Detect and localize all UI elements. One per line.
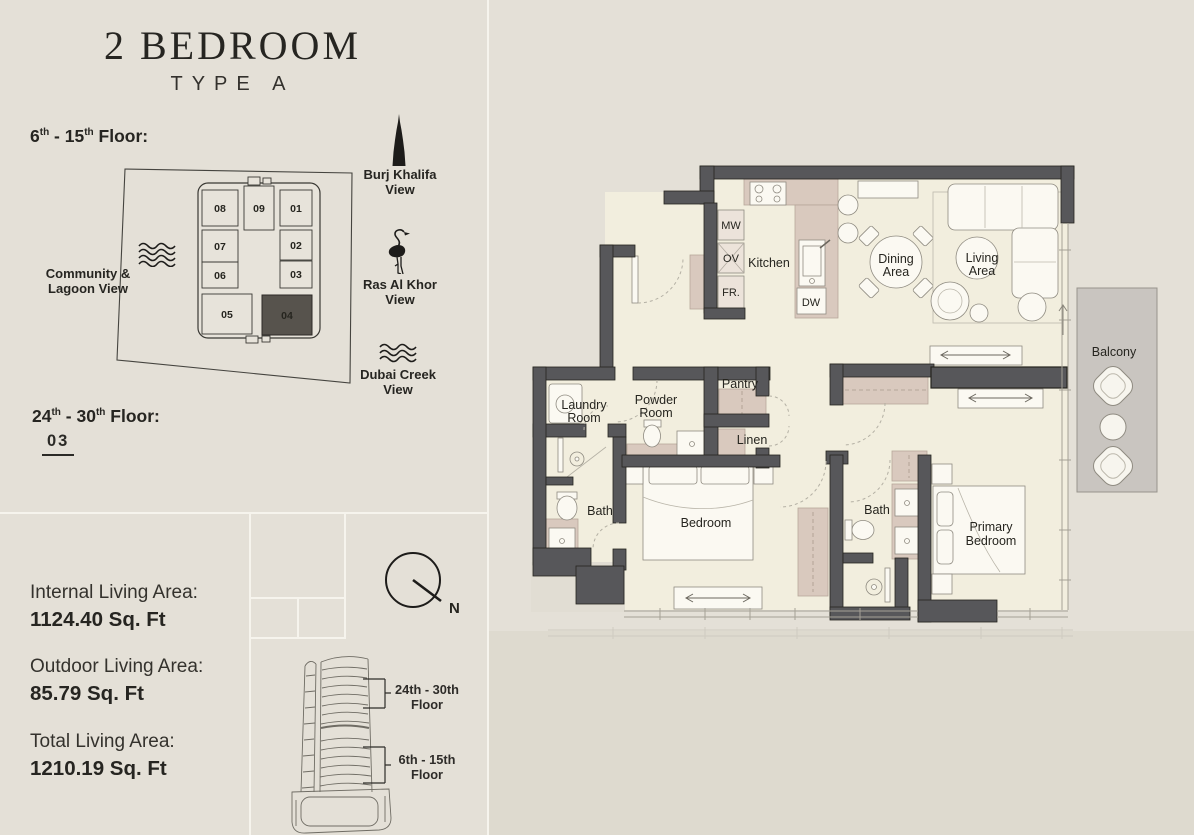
- unit-02: 02: [290, 240, 302, 252]
- unit-type-title: 2 BEDROOM: [85, 22, 380, 69]
- floor-range-high-label: 24th - 30th Floor:: [32, 406, 160, 427]
- unit-number-badge: 03: [42, 432, 74, 456]
- side-table: [970, 304, 988, 322]
- unit-01: 01: [290, 203, 302, 215]
- divider-vertical-b: [344, 512, 346, 638]
- view-dubai-creek: Dubai Creek View: [338, 367, 458, 397]
- label-kitchen: Kitchen: [748, 256, 790, 270]
- shower-glass: [885, 568, 890, 602]
- pillow: [937, 492, 953, 526]
- unit-08: 08: [214, 203, 226, 215]
- toilet: [852, 521, 874, 540]
- powder-sink: [677, 431, 708, 457]
- label-bath-2: Bath: [864, 503, 890, 517]
- unit-type-subtitle: TYPE A: [85, 73, 380, 96]
- hall-console: [690, 255, 704, 309]
- label-primary-2: Bedroom: [966, 534, 1017, 548]
- unit-03: 03: [290, 269, 302, 281]
- label-dining-1: Dining: [878, 252, 913, 266]
- nightstand: [932, 464, 952, 484]
- outdoor-area-label: Outdoor Living Area:: [30, 656, 203, 678]
- floor-range-low-label: 6th - 15th Floor:: [30, 126, 148, 147]
- toilet-tank: [845, 520, 852, 540]
- label-bath-1: Bath: [587, 504, 613, 518]
- label-mw: MW: [721, 220, 741, 232]
- outdoor-area-group: Outdoor Living Area: 85.79 Sq. Ft: [30, 656, 203, 706]
- unit-07: 07: [214, 241, 226, 253]
- nightstand: [932, 574, 952, 594]
- outdoor-area-value: 85.79 Sq. Ft: [30, 682, 203, 706]
- total-area-value: 1210.19 Sq. Ft: [30, 757, 175, 781]
- floor-high-sup2: th: [96, 407, 105, 418]
- label-laundry-2: Room: [567, 411, 600, 425]
- total-area-label: Total Living Area:: [30, 731, 175, 753]
- bath2-sink: [895, 489, 920, 516]
- unit-05: 05: [221, 309, 233, 321]
- floor-low-sup1: th: [40, 127, 49, 138]
- label-dw: DW: [802, 297, 821, 309]
- view-creek-line2: View: [338, 382, 458, 397]
- balcony-area: [1077, 288, 1157, 492]
- sofa-vertical: [1012, 228, 1058, 298]
- elevation-upper-word: Floor: [377, 697, 477, 712]
- floor-high-num1: 24: [32, 406, 51, 426]
- shower-head-dot: [872, 585, 877, 590]
- page-title: 2 BEDROOM TYPE A: [85, 22, 380, 96]
- bath2-sink: [895, 527, 920, 554]
- exterior-ledge-lines: [548, 627, 1073, 639]
- view-ras-line2: View: [340, 292, 460, 307]
- burj-khalifa-icon: [390, 114, 408, 166]
- brochure-page: 2 BEDROOM TYPE A 6th - 15th Floor: 08: [0, 0, 1194, 835]
- floor-plan: Kitchen Dining Area Living Area Balcony …: [500, 140, 1194, 700]
- flamingo-icon: [386, 228, 414, 274]
- label-laundry-1: Laundry: [561, 398, 607, 412]
- label-bedroom: Bedroom: [681, 516, 732, 530]
- stove: [750, 182, 786, 205]
- compass: N: [378, 545, 473, 625]
- label-powder-2: Room: [639, 406, 672, 420]
- sofa-horizontal: [948, 184, 1058, 230]
- label-primary-1: Primary: [969, 520, 1013, 534]
- view-burj-line1: Burj Khalifa: [340, 167, 460, 182]
- compass-north-label: N: [449, 600, 460, 617]
- floor-low-word: Floor:: [94, 126, 148, 146]
- view-community-line1: Community &: [18, 266, 158, 281]
- shower-head-dot: [575, 457, 579, 461]
- pillow: [937, 530, 953, 564]
- ottoman: [1018, 293, 1046, 321]
- label-ov: OV: [723, 253, 740, 265]
- label-linen: Linen: [737, 433, 768, 447]
- unit-09: 09: [253, 203, 265, 215]
- floor-high-sup1: th: [51, 407, 60, 418]
- elevation-upper-label: 24th - 30th Floor: [377, 682, 477, 712]
- pillow: [701, 466, 749, 484]
- entry-door-leaf: [632, 256, 638, 303]
- pillow: [649, 466, 697, 484]
- floor-high-num2: - 30: [61, 406, 96, 426]
- floor-high-word: Floor:: [105, 406, 159, 426]
- elevation-upper-range: 24th - 30th: [377, 682, 477, 697]
- view-community: Community & Lagoon View: [18, 266, 158, 296]
- toilet: [644, 425, 661, 447]
- toilet: [557, 496, 577, 520]
- elevation-lower-range: 6th - 15th: [377, 752, 477, 767]
- shower-glass: [558, 438, 563, 472]
- view-burj: Burj Khalifa View: [340, 167, 460, 197]
- floor-low-num2: - 15: [49, 126, 84, 146]
- unit-04: 04: [281, 310, 293, 322]
- label-balcony: Balcony: [1092, 345, 1137, 359]
- view-burj-line2: View: [340, 182, 460, 197]
- view-ras-line1: Ras Al Khor: [340, 277, 460, 292]
- elevation-lower-word: Floor: [377, 767, 477, 782]
- sideboard: [858, 181, 918, 198]
- stool: [838, 223, 858, 243]
- divider-vertical-c: [297, 597, 299, 639]
- label-living-1: Living: [966, 251, 999, 265]
- elevation-lower-label: 6th - 15th Floor: [377, 752, 477, 782]
- divider-horizontal: [0, 512, 488, 514]
- divider-vertical-a: [249, 512, 251, 835]
- floor-low-num1: 6: [30, 126, 40, 146]
- view-ras-al-khor: Ras Al Khor View: [340, 277, 460, 307]
- view-creek-line1: Dubai Creek: [338, 367, 458, 382]
- unit-06: 06: [214, 270, 226, 282]
- building-elevation: [285, 645, 400, 835]
- waves-icon: [136, 241, 180, 267]
- internal-area-value: 1124.40 Sq. Ft: [30, 608, 198, 632]
- total-area-group: Total Living Area: 1210.19 Sq. Ft: [30, 731, 175, 781]
- label-dining-2: Area: [883, 265, 909, 279]
- armchair: [931, 282, 969, 320]
- label-living-2: Area: [969, 264, 995, 278]
- label-pantry: Pantry: [722, 377, 759, 391]
- floor-low-sup2: th: [84, 127, 93, 138]
- internal-area-label: Internal Living Area:: [30, 582, 198, 604]
- view-community-line2: Lagoon View: [18, 281, 158, 296]
- waves-icon: [377, 342, 421, 364]
- balcony-table: [1100, 414, 1126, 440]
- label-fr: FR.: [722, 287, 740, 299]
- internal-area-group: Internal Living Area: 1124.40 Sq. Ft: [30, 582, 198, 632]
- divider-vertical-main: [487, 0, 489, 835]
- label-powder-1: Powder: [635, 393, 677, 407]
- stool: [838, 195, 858, 215]
